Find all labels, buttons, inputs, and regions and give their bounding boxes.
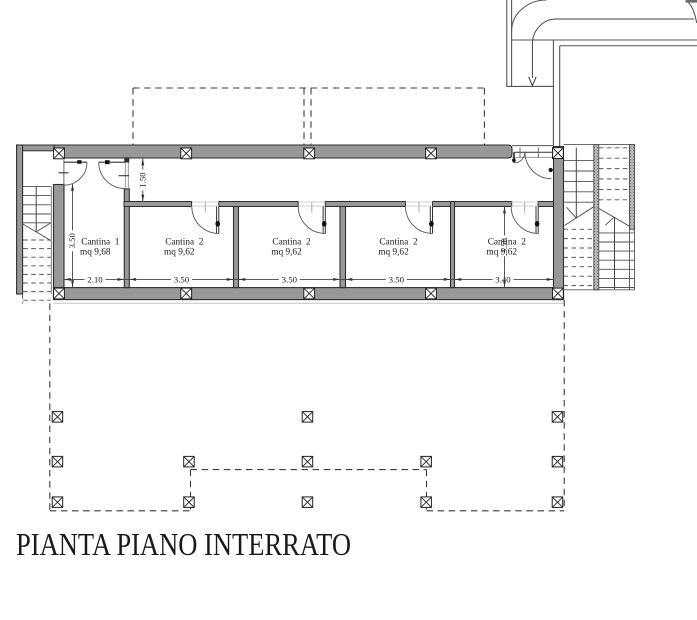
svg-text:3.50: 3.50 (174, 275, 190, 285)
svg-text:Cantina 2: Cantina 2 (379, 238, 418, 248)
svg-text:Cantina 2: Cantina 2 (488, 238, 527, 248)
svg-text:3.40: 3.40 (495, 275, 511, 285)
svg-text:mq 9,62: mq 9,62 (271, 247, 302, 257)
svg-text:3.50: 3.50 (282, 275, 298, 285)
svg-text:mq 9,62: mq 9,62 (487, 247, 518, 257)
svg-text:mq 9,68: mq 9,68 (80, 247, 111, 257)
svg-text:Cantina 1: Cantina 1 (81, 238, 120, 248)
svg-text:2.10: 2.10 (87, 275, 103, 285)
svg-text:mq 9,62: mq 9,62 (164, 247, 195, 257)
svg-text:3.50: 3.50 (389, 275, 405, 285)
svg-text:Cantina 2: Cantina 2 (165, 238, 204, 248)
svg-text:PIANTA PIANO INTERRATO: PIANTA PIANO INTERRATO (16, 527, 351, 562)
svg-text:1.50: 1.50 (137, 172, 147, 188)
svg-text:mq 9,62: mq 9,62 (378, 247, 409, 257)
svg-text:Cantina 2: Cantina 2 (272, 238, 311, 248)
svg-text:3.50: 3.50 (67, 233, 77, 249)
